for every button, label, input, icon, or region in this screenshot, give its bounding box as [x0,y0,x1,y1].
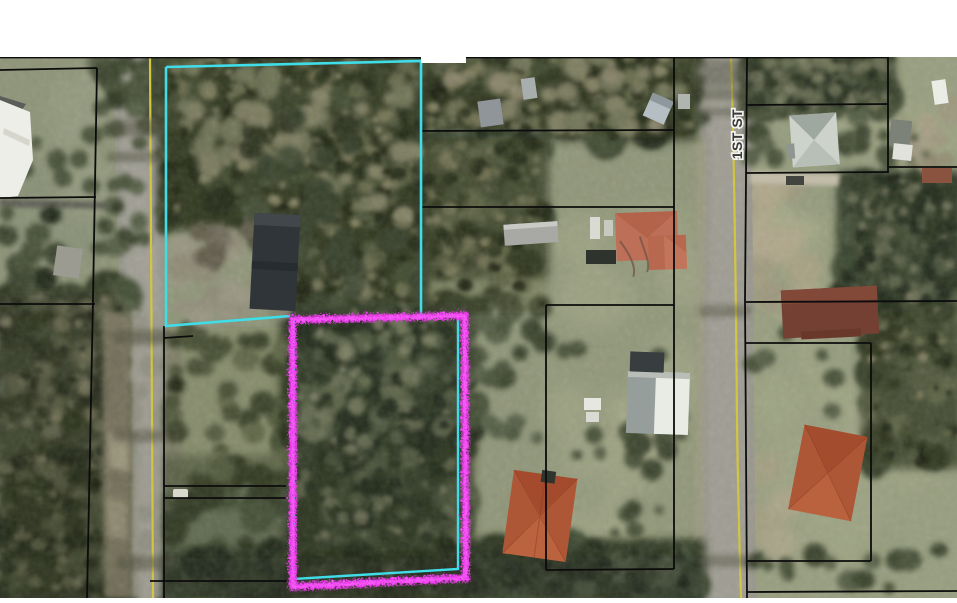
svg-text:1ST ST: 1ST ST [729,109,745,159]
